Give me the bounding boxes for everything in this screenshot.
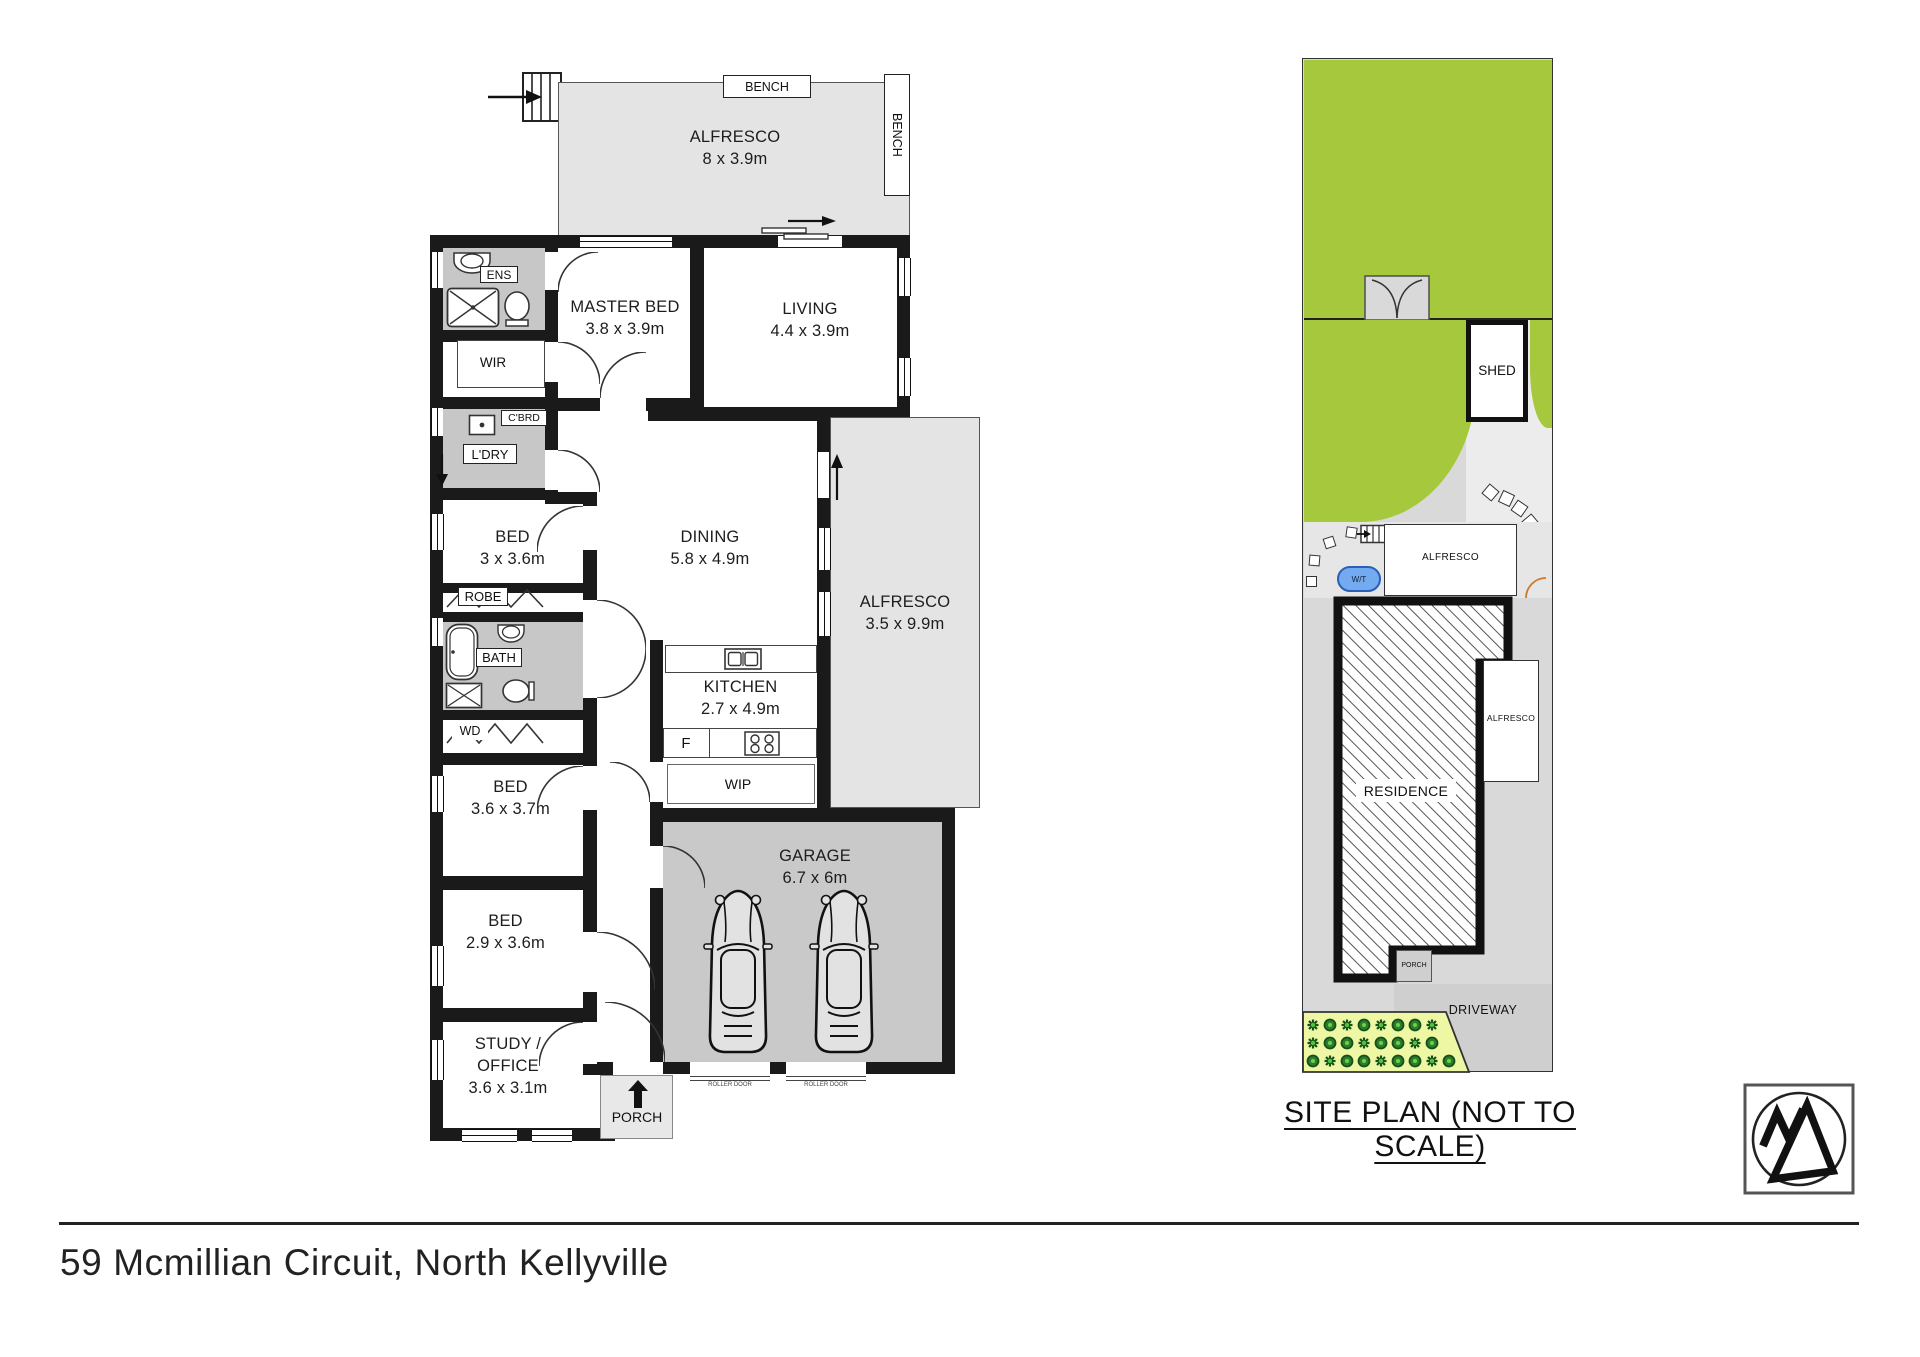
garage-door-opening bbox=[786, 1062, 866, 1074]
site-porch-label: PORCH bbox=[1396, 960, 1432, 971]
door-opening bbox=[583, 600, 597, 698]
room-label-living: LIVING 4.4 x 3.9m bbox=[745, 292, 875, 348]
bath-label: BATH bbox=[476, 648, 522, 667]
bathtub-icon bbox=[445, 623, 479, 681]
room-label-bed3: BED 2.9 x 3.6m bbox=[443, 906, 568, 958]
toilet-icon bbox=[500, 676, 536, 706]
room-label-kitchen: KITCHEN 2.7 x 4.9m bbox=[678, 672, 803, 724]
ens-label: ENS bbox=[480, 266, 518, 283]
door-arc bbox=[558, 342, 600, 384]
toilet-icon bbox=[502, 290, 532, 328]
wall bbox=[430, 488, 558, 500]
door-arc bbox=[537, 766, 583, 812]
robe-label: ROBE bbox=[458, 587, 508, 606]
wall bbox=[690, 248, 704, 408]
roller-door-label: ROLLER DOOR bbox=[786, 1081, 866, 1089]
car-icon bbox=[700, 888, 776, 1056]
porch-entry-arrow-icon bbox=[628, 1080, 648, 1108]
site-plan-caption: SITE PLAN (NOT TO SCALE) bbox=[1230, 1096, 1630, 1136]
door-arc bbox=[597, 600, 646, 649]
alfresco-door-arrow-icon bbox=[828, 452, 846, 502]
door-opening bbox=[583, 1022, 597, 1064]
room-label-alfresco-right: ALFRESCO 3.5 x 9.9m bbox=[845, 585, 965, 641]
window bbox=[898, 258, 911, 296]
door-opening bbox=[545, 252, 558, 290]
door-arc bbox=[539, 1022, 583, 1066]
wall bbox=[430, 1008, 597, 1022]
entry-steps-icon bbox=[486, 70, 566, 126]
door-arc bbox=[597, 649, 646, 698]
garage-door-opening bbox=[690, 1062, 770, 1074]
stepping-stone bbox=[1345, 526, 1357, 538]
door-opening bbox=[583, 932, 597, 992]
wd-label: WD bbox=[452, 722, 488, 740]
room-label-garage: GARAGE 6.7 x 6m bbox=[745, 840, 885, 894]
floorplan-page: ALFRESCO 8 x 3.9m BENCH BENCH ALFRESCO 3… bbox=[0, 0, 1920, 1357]
door-arc bbox=[597, 932, 655, 990]
window bbox=[431, 1040, 444, 1080]
wall bbox=[430, 612, 583, 622]
room-label-master-bed: MASTER BED 3.8 x 3.9m bbox=[560, 288, 690, 348]
door-opening bbox=[583, 506, 597, 550]
site-alfresco-upper-label: ALFRESCO bbox=[1384, 550, 1517, 564]
site-alfresco-side-label: ALFRESCO bbox=[1483, 712, 1539, 724]
stepping-stone bbox=[1306, 576, 1317, 587]
water-tank: W/T bbox=[1337, 566, 1381, 592]
door-arc bbox=[663, 846, 705, 888]
door-arc bbox=[605, 1002, 665, 1062]
window bbox=[818, 592, 831, 636]
wall bbox=[430, 1128, 615, 1141]
laundry-exit-arrow-icon bbox=[435, 454, 449, 486]
fridge-divider bbox=[709, 728, 710, 758]
room-label-dining: DINING 5.8 x 4.9m bbox=[640, 520, 780, 576]
porch-label: PORCH bbox=[608, 1108, 666, 1126]
wir-label: WIR bbox=[468, 352, 518, 372]
wall bbox=[430, 235, 561, 248]
window bbox=[898, 358, 911, 396]
residence-label: RESIDENCE bbox=[1356, 779, 1456, 802]
wall bbox=[650, 808, 955, 822]
shower-icon bbox=[445, 682, 483, 709]
bench-right: BENCH bbox=[884, 74, 910, 196]
window bbox=[818, 528, 831, 570]
shower-icon bbox=[446, 287, 500, 328]
door-arc bbox=[537, 506, 583, 552]
door-opening bbox=[583, 766, 597, 810]
window bbox=[431, 776, 444, 812]
gate-icon bbox=[1363, 274, 1431, 322]
door-opening bbox=[650, 846, 663, 888]
door-arc bbox=[600, 352, 646, 398]
wip-label: WIP bbox=[706, 774, 770, 794]
window bbox=[532, 1129, 572, 1142]
car-icon bbox=[806, 888, 882, 1056]
footer-divider bbox=[59, 1222, 1859, 1225]
front-door-opening bbox=[613, 1062, 663, 1075]
fridge-label: F bbox=[671, 732, 701, 754]
sliding-door-arrow-icon bbox=[760, 214, 844, 240]
north-arrow-icon bbox=[1742, 1082, 1856, 1196]
wall bbox=[430, 753, 583, 765]
door-opening bbox=[600, 398, 646, 411]
kitchen-sink-icon bbox=[724, 648, 762, 670]
bench-top: BENCH bbox=[723, 75, 811, 98]
cooktop-icon bbox=[744, 731, 780, 756]
wall bbox=[430, 235, 443, 1141]
window bbox=[580, 236, 672, 248]
ldry-label: L'DRY bbox=[463, 444, 517, 464]
door-opening bbox=[650, 762, 663, 802]
door-arc bbox=[558, 450, 600, 492]
stepping-stone bbox=[1309, 555, 1321, 567]
garden-bed bbox=[1300, 1008, 1472, 1076]
wall bbox=[817, 640, 830, 810]
address-text: 59 Mcmillian Circuit, North Kellyville bbox=[60, 1242, 669, 1284]
basin-icon bbox=[496, 623, 526, 645]
laundry-tub-icon bbox=[468, 414, 496, 436]
door-arc bbox=[610, 762, 650, 802]
wall bbox=[430, 397, 558, 409]
room-label-alfresco-top: ALFRESCO 8 x 3.9m bbox=[640, 118, 830, 178]
door-opening bbox=[545, 342, 558, 382]
door-opening bbox=[545, 450, 558, 490]
wall bbox=[430, 876, 597, 890]
shed-label: SHED bbox=[1466, 360, 1528, 380]
window bbox=[431, 514, 444, 550]
door-arc bbox=[558, 252, 598, 292]
cbrd-label: C'BRD bbox=[501, 410, 547, 426]
window bbox=[462, 1129, 517, 1142]
wall bbox=[942, 808, 955, 1074]
roller-door-label: ROLLER DOOR bbox=[690, 1081, 770, 1089]
